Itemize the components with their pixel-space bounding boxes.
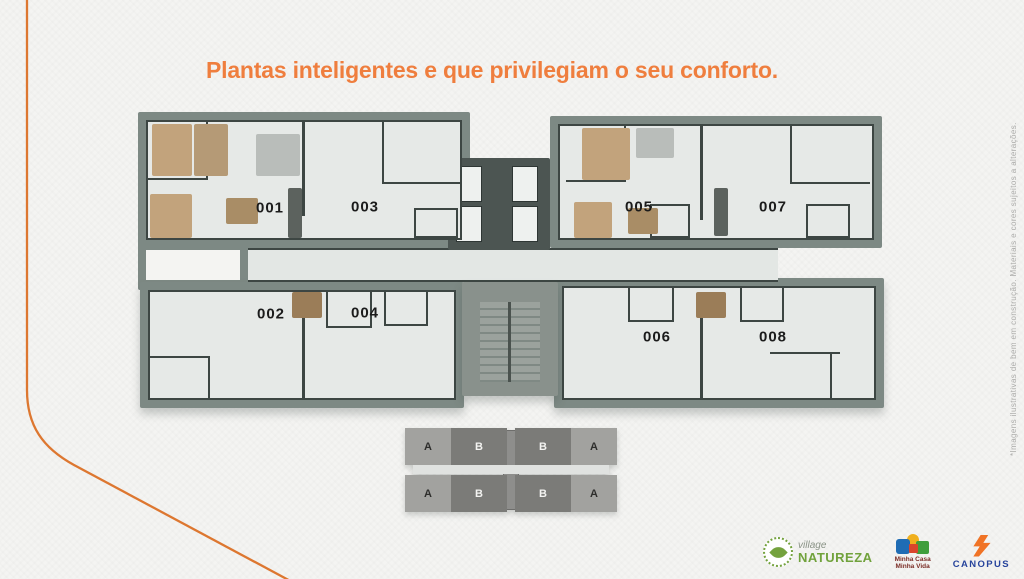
key-plan-row-bottom: A B B A: [405, 475, 617, 512]
wall: [146, 178, 208, 180]
stair-divider: [508, 302, 511, 382]
key-plan-block-a: A: [405, 428, 451, 465]
elevator-shaft: [512, 166, 538, 202]
unit-label-003: 003: [351, 199, 379, 216]
furniture-kitchen: [288, 188, 302, 238]
minha-casa-minha-vida-icon: [896, 534, 930, 554]
key-plan-corridor: [413, 465, 609, 474]
blue-house-shape: [896, 539, 910, 554]
stair-core: [462, 282, 558, 396]
wall: [700, 304, 703, 400]
wall: [382, 120, 384, 184]
wall: [790, 182, 870, 184]
furniture-bed: [194, 124, 228, 176]
key-plan: A B B A A B B A: [405, 428, 617, 513]
mcmv-line2: Minha Vida: [895, 563, 931, 570]
disclaimer-text: *Imagens ilustrativas de bem em construç…: [1009, 100, 1018, 478]
bathroom: [740, 286, 784, 322]
mcmv-line1: Minha Casa: [895, 556, 931, 563]
floor-plan: 001 003 005 007 002 004 006 008: [130, 112, 890, 420]
key-plan-block-b: B: [515, 475, 571, 512]
page-title: Plantas inteligentes e que privilegiam o…: [0, 57, 984, 84]
furniture-kitchen-sink: [696, 292, 726, 318]
wall: [208, 356, 210, 400]
key-plan-block-a: A: [571, 428, 617, 465]
unit-label-001: 001: [256, 200, 284, 217]
wall: [302, 120, 305, 216]
furniture-kitchen: [714, 188, 728, 236]
wall: [700, 124, 703, 220]
corridor: [248, 248, 778, 282]
key-plan-block-b: B: [515, 428, 571, 465]
unit-label-007: 007: [759, 199, 787, 216]
furniture-bed: [152, 124, 192, 176]
elevator-core: [448, 158, 550, 250]
unit-label-002: 002: [257, 306, 285, 323]
village-natureza-logo: village NATUREZA: [763, 537, 873, 567]
bathroom: [414, 208, 458, 238]
canopus-icon: [971, 535, 991, 557]
key-plan-block-a: A: [571, 475, 617, 512]
unit-label-005: 005: [625, 199, 653, 216]
furniture-bed: [574, 202, 612, 238]
bathroom: [806, 204, 850, 238]
key-plan-block-b: B: [451, 428, 507, 465]
key-plan-block-a: A: [405, 475, 451, 512]
footer-logos: village NATUREZA Minha Casa Minha Vida C…: [763, 529, 1010, 575]
red-house-shape: [909, 544, 918, 553]
natureza-text: NATUREZA: [798, 551, 873, 564]
marketing-slide: Plantas inteligentes e que privilegiam o…: [0, 0, 1024, 579]
leaf-icon: [769, 543, 787, 561]
bathroom: [628, 286, 674, 322]
village-natureza-leaf-icon: [763, 537, 793, 567]
wall: [302, 308, 305, 400]
minha-casa-minha-vida-wordmark: Minha Casa Minha Vida: [895, 556, 931, 570]
wall: [830, 352, 832, 400]
minha-casa-minha-vida-logo: Minha Casa Minha Vida: [895, 534, 931, 570]
furniture-bed: [582, 128, 630, 180]
wall: [566, 180, 624, 182]
canopus-logo: CANOPUS: [953, 535, 1010, 570]
unit-label-008: 008: [759, 329, 787, 346]
key-plan-block-b: B: [451, 475, 507, 512]
unit-label-004: 004: [351, 305, 379, 322]
elevator-shaft: [512, 206, 538, 242]
village-script-text: village: [798, 541, 873, 551]
furniture-sofa: [256, 134, 300, 176]
unit-label-006: 006: [643, 329, 671, 346]
key-plan-row-top: A B B A: [405, 428, 617, 465]
village-natureza-wordmark: village NATUREZA: [798, 541, 873, 564]
furniture-table: [226, 198, 258, 224]
furniture-kitchen-sink: [292, 292, 322, 318]
wall: [382, 182, 462, 184]
canopus-wordmark: CANOPUS: [953, 559, 1010, 570]
furniture-bed: [150, 194, 192, 238]
lightwell-notch-left: [146, 250, 240, 280]
furniture-sofa: [636, 128, 674, 158]
wall: [790, 124, 792, 184]
bathroom: [384, 290, 428, 326]
wall: [148, 356, 208, 358]
